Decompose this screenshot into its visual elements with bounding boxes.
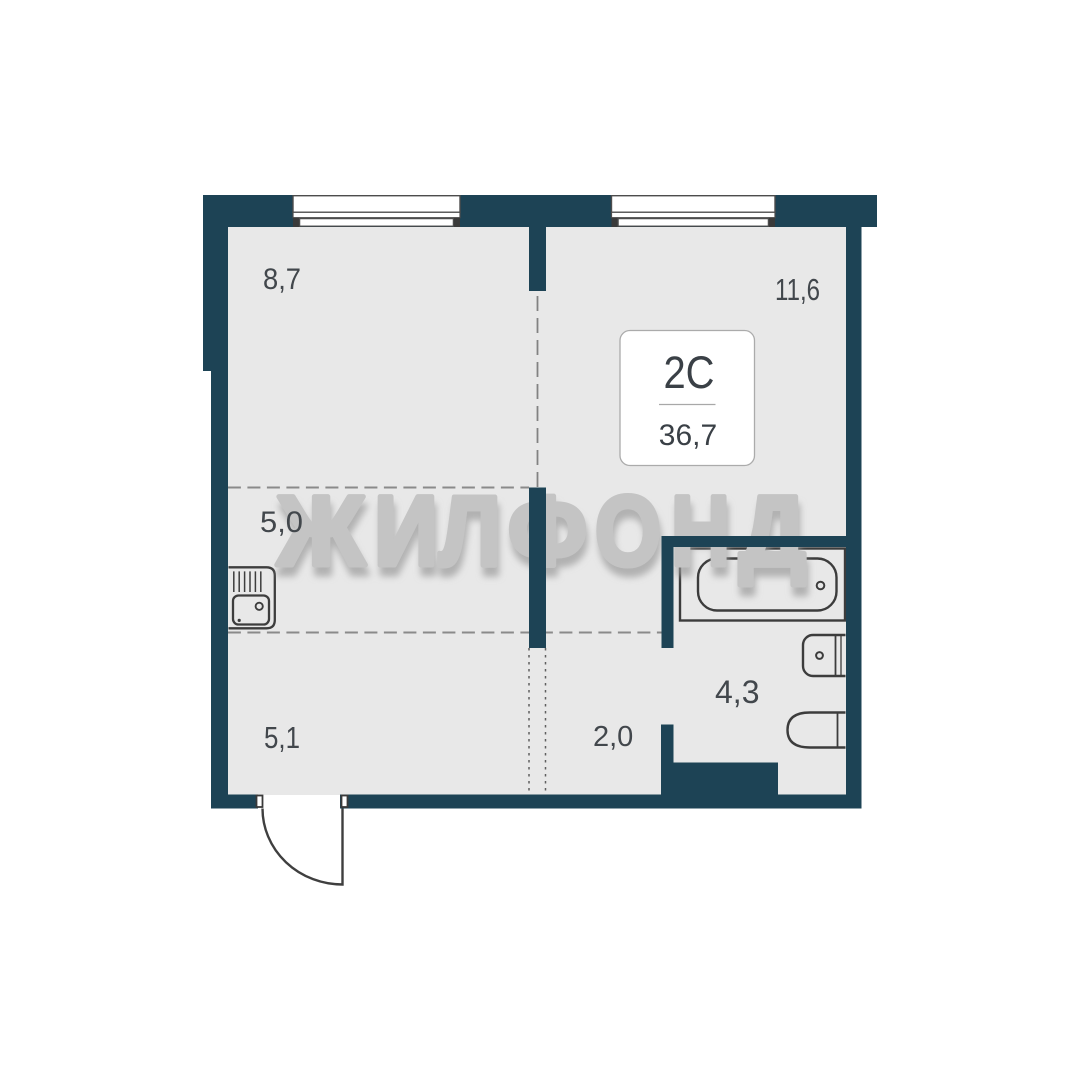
svg-text:И: И	[374, 475, 438, 586]
svg-text:11,6: 11,6	[775, 272, 820, 307]
svg-text:36,7: 36,7	[659, 419, 717, 452]
svg-text:Ф: Ф	[508, 475, 587, 586]
svg-text:Л: Л	[439, 475, 501, 586]
svg-text:Д: Д	[739, 475, 806, 586]
svg-text:5,0: 5,0	[260, 506, 303, 539]
svg-text:2,0: 2,0	[593, 721, 633, 753]
svg-text:5,1: 5,1	[264, 720, 300, 755]
svg-text:Н: Н	[671, 475, 730, 586]
svg-text:2С: 2С	[664, 347, 715, 398]
svg-text:О: О	[595, 475, 661, 586]
svg-text:4,3: 4,3	[715, 674, 759, 710]
svg-text:8,7: 8,7	[263, 263, 301, 296]
